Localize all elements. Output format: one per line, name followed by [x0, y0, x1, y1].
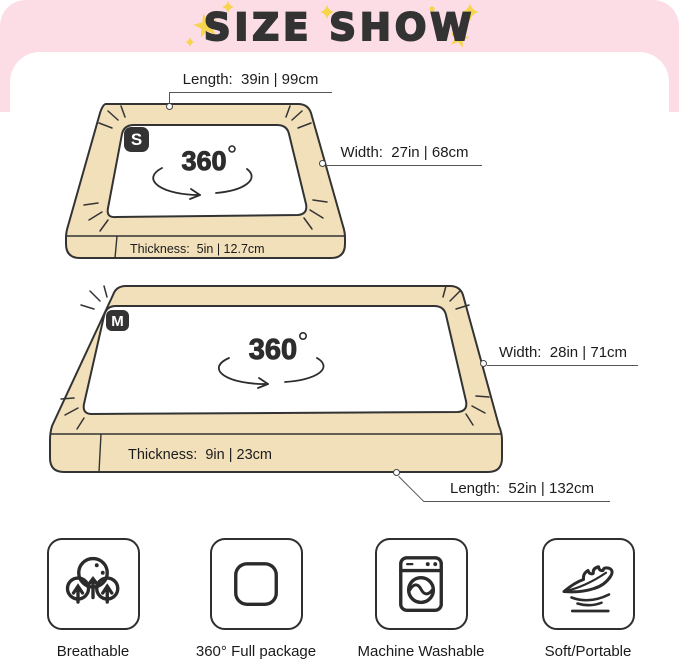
- feather-icon: [552, 548, 624, 620]
- width-label-s: Width: 27in | 68cm: [327, 144, 482, 162]
- feature-label: 360° Full package: [196, 643, 316, 660]
- rotation-360-text: 360: [181, 146, 226, 176]
- feature-breathable: Breathable: [33, 538, 153, 660]
- feature-label: Soft/Portable: [545, 643, 632, 660]
- feature-label: Breathable: [57, 643, 130, 660]
- width-label-m: Width: 28in | 71cm: [488, 344, 638, 362]
- length-line-s: [169, 92, 332, 93]
- width-marker-m: [480, 360, 487, 367]
- size-show-infographic: SIZE SHOW S 360 Thickness: 5in | 12.7cm: [0, 0, 679, 663]
- width-line-s: [326, 165, 482, 166]
- feature-box: [542, 538, 635, 630]
- machine-washable-icon: [385, 548, 457, 620]
- bed-size-m: M 360 Thickness: 9in | 23cm: [40, 278, 505, 478]
- feature-full-package: 360° Full package: [196, 538, 316, 660]
- length-label-s: Length: 39in | 99cm: [169, 71, 332, 89]
- thickness-label-s: Thickness: 5in | 12.7cm: [130, 242, 265, 256]
- feature-machine-washable: Machine Washable: [361, 538, 481, 660]
- full-package-icon: [220, 548, 292, 620]
- width-line-m: [487, 365, 638, 366]
- feature-box: [375, 538, 468, 630]
- length-marker-s: [166, 103, 173, 110]
- length-marker-m: [393, 469, 400, 476]
- feature-box: [47, 538, 140, 630]
- length-line-m: [424, 501, 610, 502]
- feature-label: Machine Washable: [358, 643, 485, 660]
- size-badge-m-letter: M: [111, 313, 124, 330]
- bed-size-s: S 360 Thickness: 5in | 12.7cm: [60, 98, 355, 268]
- feature-box: [210, 538, 303, 630]
- feature-soft-portable: Soft/Portable: [528, 538, 648, 660]
- length-label-m: Length: 52in | 132cm: [434, 480, 610, 498]
- size-badge-s-letter: S: [131, 130, 142, 149]
- thickness-label-m: Thickness: 9in | 23cm: [128, 447, 272, 463]
- page-title: SIZE SHOW: [0, 6, 679, 49]
- rotation-360-text: 360: [249, 334, 297, 366]
- width-marker-s: [319, 160, 326, 167]
- breathable-icon: [57, 548, 129, 620]
